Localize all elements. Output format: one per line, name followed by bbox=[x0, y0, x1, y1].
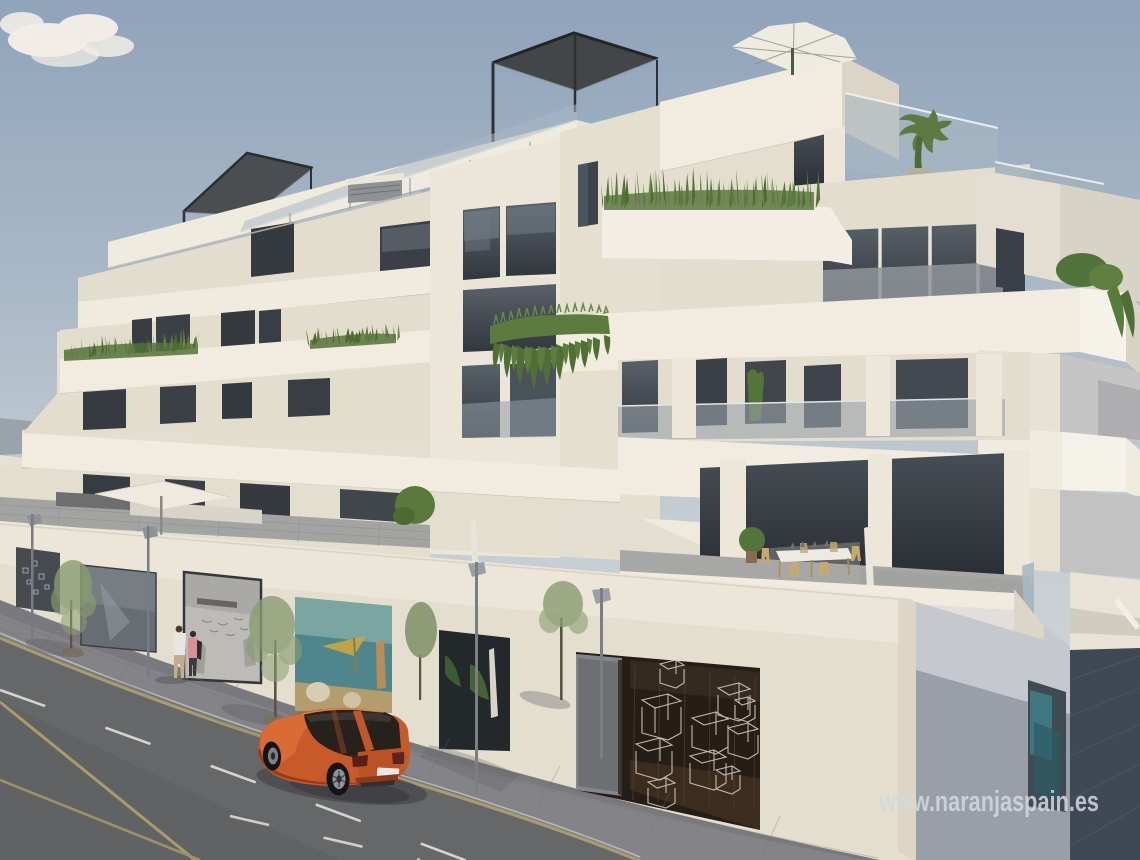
svg-text:www.naranjaspain.es: www.naranjaspain.es bbox=[878, 786, 1099, 818]
